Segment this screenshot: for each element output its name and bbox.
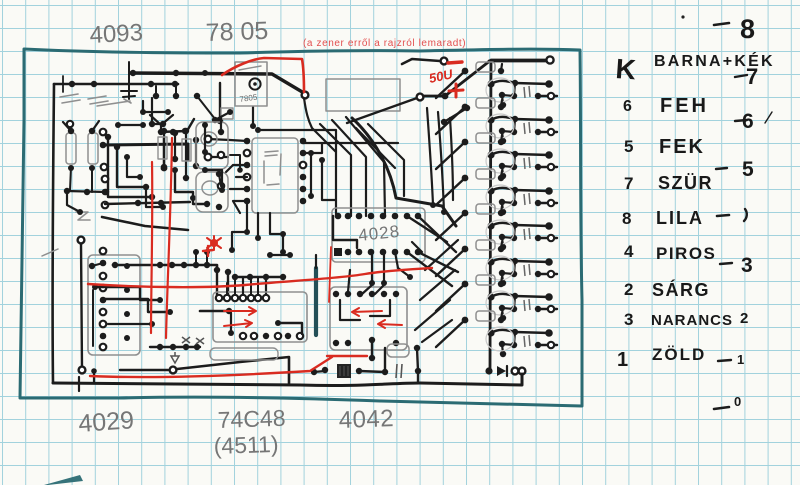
svg-text:(a zener erről a rajzról lemar: (a zener erről a rajzról lemaradt) [303,38,466,49]
svg-text:5: 5 [742,158,754,181]
svg-text:74C48: 74C48 [217,405,286,433]
svg-text:8: 8 [740,14,755,44]
svg-text:NARANCS: NARANCS [651,312,733,329]
svg-text:1: 1 [737,352,744,367]
svg-text:LILA: LILA [656,208,704,228]
svg-text:3: 3 [741,254,753,277]
svg-text:3: 3 [624,310,633,329]
svg-text:7: 7 [746,64,758,89]
svg-text:1: 1 [617,349,628,371]
svg-text:4093: 4093 [89,19,144,49]
svg-text:6: 6 [742,110,754,133]
svg-text:SZÜR: SZÜR [658,173,713,193]
svg-text:78 05: 78 05 [205,17,269,47]
svg-text:2: 2 [624,280,633,299]
svg-text:7: 7 [624,174,633,193]
svg-text:4042: 4042 [338,405,394,434]
svg-text:FEH: FEH [660,95,709,117]
svg-text:SÁRG: SÁRG [652,279,710,300]
svg-text:(4511): (4511) [213,431,279,459]
svg-text:K: K [615,53,637,85]
svg-text:PIROS: PIROS [656,244,716,263]
svg-text:8: 8 [622,209,631,228]
svg-text:0: 0 [734,394,741,409]
svg-text:6: 6 [623,98,632,115]
svg-text:2: 2 [740,310,748,327]
svg-text:ZÖLD: ZÖLD [652,345,706,364]
svg-text:4: 4 [624,242,634,261]
svg-text:5: 5 [624,137,633,156]
svg-text:4029: 4029 [77,406,134,438]
svg-text:FEK: FEK [659,136,705,158]
